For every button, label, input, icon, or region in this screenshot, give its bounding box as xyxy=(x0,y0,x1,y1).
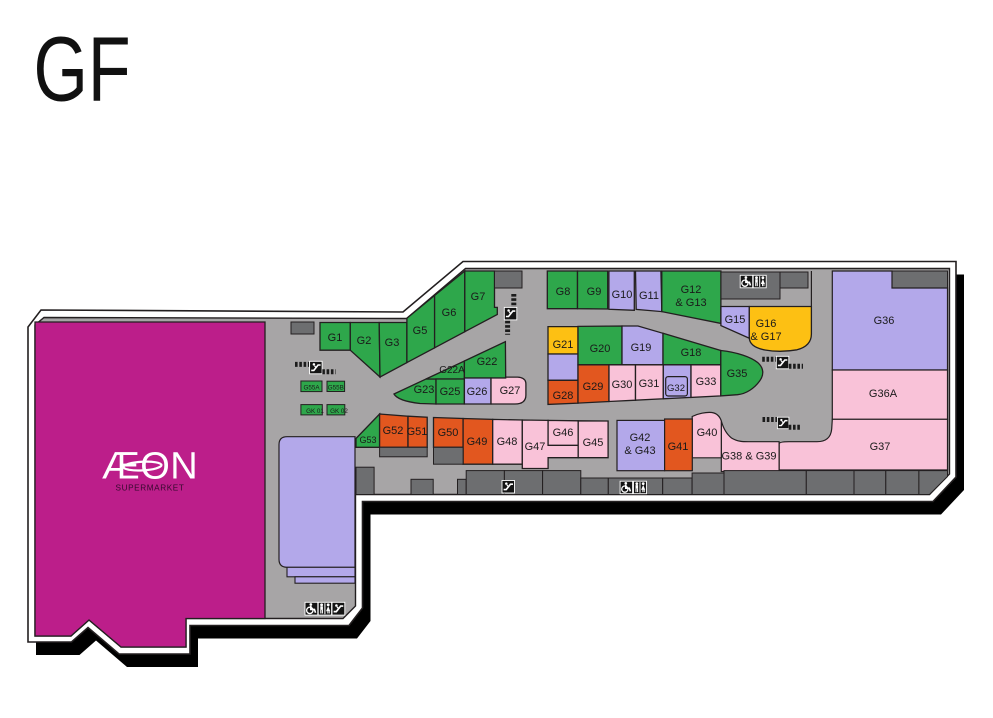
svg-text:G31: G31 xyxy=(639,378,660,390)
svg-text:G6: G6 xyxy=(442,307,457,319)
svg-text:GK 01: GK 01 xyxy=(306,408,324,415)
svg-text:SUPERMARKET: SUPERMARKET xyxy=(116,484,185,493)
svg-text:G22A: G22A xyxy=(439,365,465,376)
svg-text:G47: G47 xyxy=(525,441,546,453)
svg-text:G18: G18 xyxy=(681,347,702,359)
svg-text:G5: G5 xyxy=(413,325,428,337)
svg-text:G12: G12 xyxy=(681,284,702,296)
svg-text:& G43: & G43 xyxy=(624,445,655,457)
svg-text:G9: G9 xyxy=(587,286,602,298)
svg-text:G33: G33 xyxy=(696,376,717,388)
svg-text:G27: G27 xyxy=(500,385,521,397)
svg-text:G23: G23 xyxy=(414,384,435,396)
svg-text:G2: G2 xyxy=(357,335,372,347)
svg-text:G19: G19 xyxy=(631,342,652,354)
svg-text:G55B: G55B xyxy=(328,384,344,391)
svg-text:G35: G35 xyxy=(727,368,748,380)
svg-text:G42: G42 xyxy=(630,432,651,444)
svg-text:G52: G52 xyxy=(383,425,404,437)
svg-text:G7: G7 xyxy=(471,291,486,303)
svg-text:G3: G3 xyxy=(385,337,400,349)
svg-text:G22: G22 xyxy=(477,356,498,368)
svg-text:& G17: & G17 xyxy=(750,331,781,343)
svg-text:G36: G36 xyxy=(874,315,895,327)
svg-text:ÆON: ÆON xyxy=(102,446,199,488)
svg-text:GK 02: GK 02 xyxy=(330,408,348,415)
svg-text:G50: G50 xyxy=(438,427,459,439)
svg-text:G49: G49 xyxy=(467,436,488,448)
svg-text:G29: G29 xyxy=(583,381,604,393)
svg-text:G48: G48 xyxy=(497,436,518,448)
svg-text:G1: G1 xyxy=(328,332,343,344)
svg-text:G10: G10 xyxy=(612,289,633,301)
svg-text:G32: G32 xyxy=(667,383,685,394)
svg-text:G20: G20 xyxy=(590,343,611,355)
svg-text:GF: GF xyxy=(34,18,131,120)
svg-text:G37: G37 xyxy=(870,441,891,453)
svg-text:G15: G15 xyxy=(725,314,746,326)
svg-text:G38 & G39: G38 & G39 xyxy=(721,451,776,463)
svg-text:G53: G53 xyxy=(359,435,376,445)
svg-text:G46: G46 xyxy=(553,427,574,439)
svg-text:G28: G28 xyxy=(553,390,574,402)
svg-text:G40: G40 xyxy=(697,427,718,439)
svg-text:& G13: & G13 xyxy=(675,297,706,309)
svg-text:G16: G16 xyxy=(756,318,777,330)
svg-text:G21: G21 xyxy=(553,339,574,351)
svg-text:G36A: G36A xyxy=(869,388,898,400)
svg-text:G30: G30 xyxy=(612,379,633,391)
svg-text:G26: G26 xyxy=(467,386,488,398)
svg-text:G25: G25 xyxy=(440,386,461,398)
svg-text:G41: G41 xyxy=(668,441,689,453)
svg-text:G45: G45 xyxy=(583,437,604,449)
svg-text:G51: G51 xyxy=(407,426,428,438)
svg-text:G55A: G55A xyxy=(303,384,320,391)
svg-text:G8: G8 xyxy=(556,286,571,298)
svg-text:G11: G11 xyxy=(639,290,659,302)
